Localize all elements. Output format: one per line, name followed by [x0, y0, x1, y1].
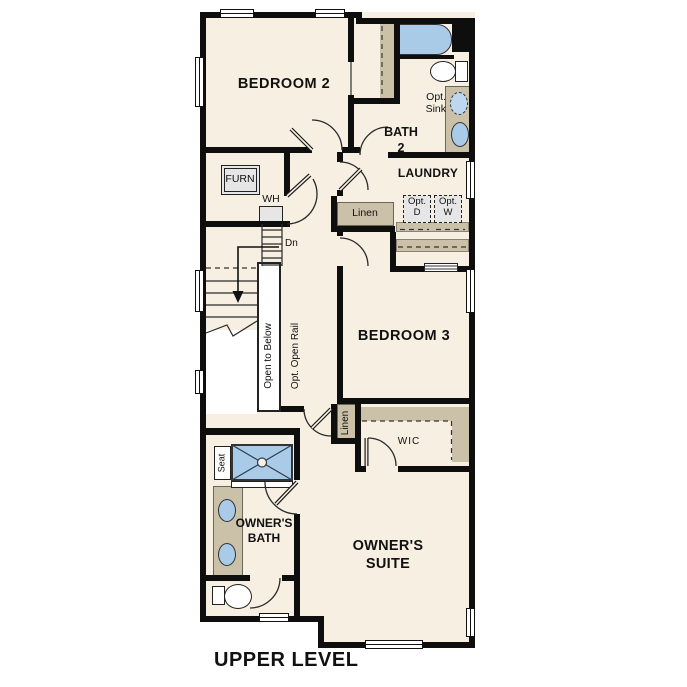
wic-label: WIC [398, 437, 420, 447]
furnace-label: FURN [225, 174, 254, 185]
bedroom3-closet-bypass-door [424, 263, 458, 272]
window-suite-bottom [365, 640, 423, 649]
plan-title: UPPER LEVEL [214, 650, 358, 670]
wall-hall-laundry-bottom [337, 190, 343, 196]
wall-hall-bedroom3-stub [337, 226, 343, 236]
wall-owners-bath-top [200, 428, 300, 435]
window-bedroom2-top-1 [220, 9, 254, 18]
wall-bedroom2-bottom-stub [342, 147, 360, 153]
owners-toilet-bowl [224, 584, 252, 609]
seat-label: Seat [218, 454, 227, 473]
bathtub [396, 24, 452, 55]
bedroom2-closet-shelf [380, 22, 394, 100]
owners-suite-label-line1: OWNER'S [353, 539, 424, 554]
tub-ledge-wall [394, 55, 454, 59]
opt-washer-label-line2: W [444, 208, 453, 218]
stairs-down-label: Dn [285, 239, 298, 249]
water-heater-label: WH [262, 194, 280, 205]
wall-toilet-room-top-stub [282, 575, 294, 581]
window-bedroom2-left [195, 57, 204, 107]
window-bedroom3-right [466, 269, 475, 313]
owners-bath-label-line1: OWNER'S [236, 517, 293, 529]
opt-sink-label-line1: Opt. [406, 92, 446, 103]
window-stair-left-2 [195, 370, 204, 394]
wall-owners-bath-right-lower [294, 514, 300, 616]
wall-closet2-right [394, 24, 400, 104]
window-laundry-right [466, 161, 475, 199]
opt-open-rail-label: Opt. Open Rail [291, 323, 301, 389]
window-bedroom2-top-2 [315, 9, 345, 18]
wall-wic-bottom-right [398, 466, 475, 472]
opt-washer-label-line1: Opt. [439, 197, 457, 207]
stairwell-void [206, 330, 257, 414]
bedroom3-label: BEDROOM 3 [358, 329, 450, 344]
shower-curb [231, 481, 293, 488]
bedroom2-label: BEDROOM 2 [238, 77, 330, 92]
bath2-label-line1: BATH [384, 126, 418, 139]
wall-bedroom3-left [337, 266, 343, 404]
laundry-counter [396, 222, 469, 232]
linen-owner-label: Linen [341, 411, 351, 435]
wall-bedroom2-bottom [200, 147, 312, 153]
bedroom3-closet-shelf [396, 239, 469, 252]
water-heater-box [259, 206, 283, 222]
wall-utility-right [284, 153, 290, 196]
shower [231, 444, 293, 481]
owners-bath-label-line2: BATH [248, 532, 280, 544]
wall-hall-bottom [281, 406, 304, 412]
floor-plan: BEDROOM 2 BATH 2 Opt. Sink LAUNDRY Opt. … [0, 0, 687, 687]
wall-right [469, 18, 475, 648]
wall-wic-bottom-left [355, 466, 366, 472]
wall-utility-bottom [200, 221, 290, 227]
window-owners-bath-bottom [259, 613, 289, 622]
bath2-toilet-bowl [430, 61, 456, 82]
owners-sink-2 [218, 543, 236, 566]
opt-sink-label-line2: Sink [406, 104, 446, 115]
wall-hall-laundry-top [337, 152, 343, 162]
owners-sink-1 [218, 499, 236, 522]
opt-dryer-label-line1: Opt. [408, 197, 426, 207]
owners-suite-label-line2: SUITE [366, 557, 410, 572]
linen-hall-label: Linen [352, 208, 378, 219]
open-to-below-label: Open to Below [264, 323, 274, 389]
window-stair-left-1 [195, 270, 204, 312]
wall-bedroom2-right-upper [348, 18, 354, 62]
bath2-toilet-tank [455, 61, 468, 82]
wall-wic-left [355, 404, 361, 472]
bath2-label-line2: 2 [398, 142, 405, 155]
opt-dryer-label-line2: D [414, 208, 421, 218]
wall-bedroom3-closet-bottom-left [390, 266, 424, 272]
wic-shelf-right [452, 407, 469, 462]
bath2-sink [451, 122, 469, 147]
window-suite-right [466, 608, 475, 637]
bath2-optional-sink [450, 92, 468, 115]
wall-toilet-room-top [200, 575, 250, 581]
laundry-label: LAUNDRY [398, 167, 458, 179]
wall-owners-bath-right-upper [294, 428, 300, 480]
